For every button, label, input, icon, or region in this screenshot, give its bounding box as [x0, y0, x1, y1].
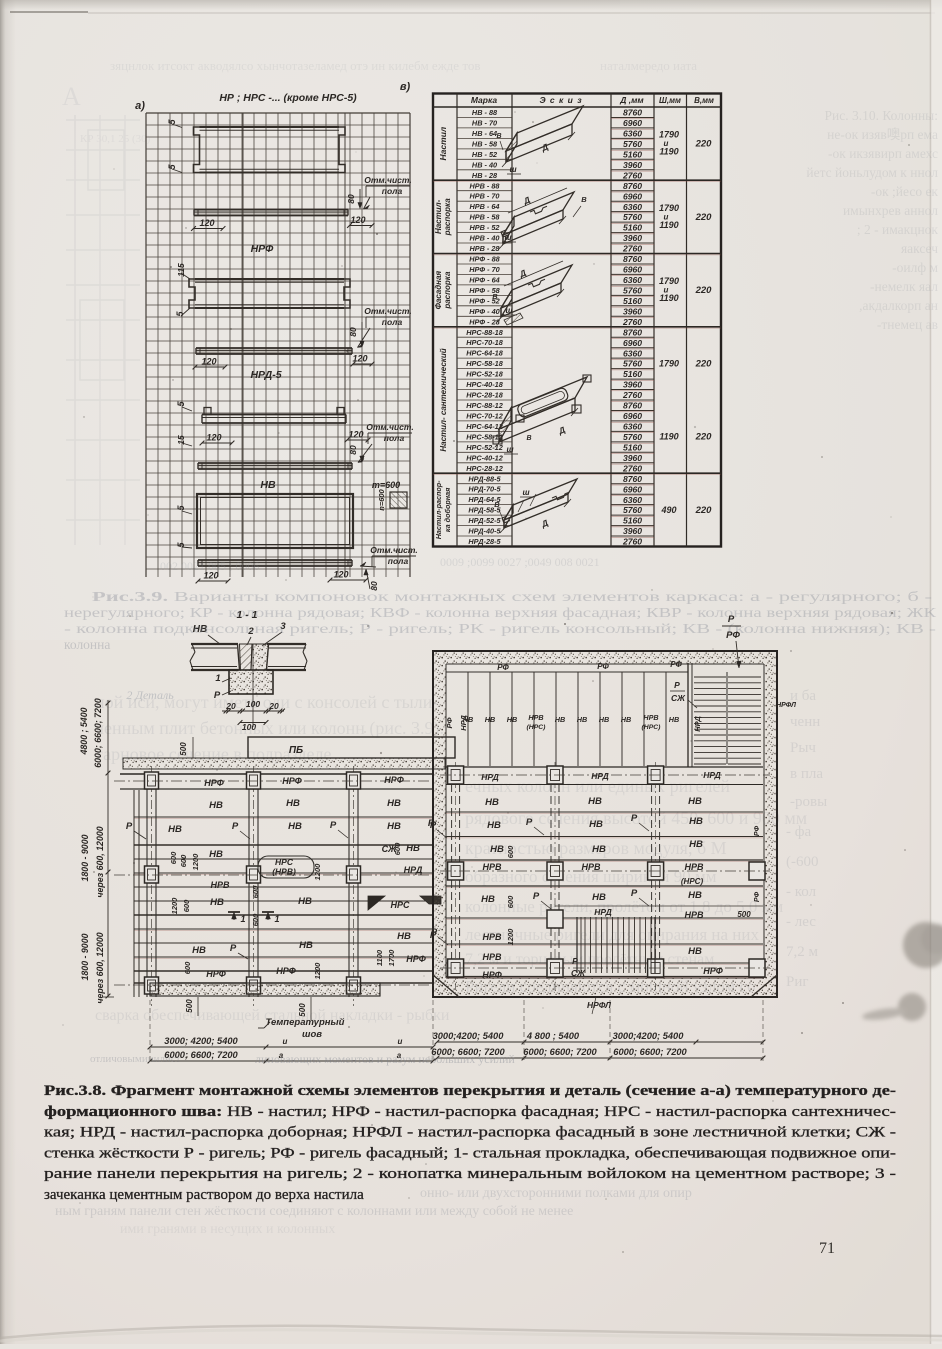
svg-text:НРВ: НРВ — [482, 862, 502, 872]
svg-text:- колонна подконсольная ригель: - колонна подконсольная ригель; Р - риге… — [64, 621, 937, 636]
svg-text:1: 1 — [215, 673, 220, 684]
svg-text:1790: 1790 — [659, 358, 679, 368]
svg-text:НРФ: НРФ — [703, 966, 723, 976]
svg-text:СЖ: СЖ — [571, 968, 586, 978]
svg-text:7,2 м и торцовым пролётным сте: 7,2 м и торцовым пролётным стенам — [465, 951, 714, 968]
svg-text:стенка жёсткости Р - ригель; Р: стенка жёсткости Р - ригель; РФ - ригель… — [44, 1145, 896, 1161]
svg-text:зачеканка цементным раствором: зачеканка цементным раствором до верха н… — [44, 1187, 364, 1203]
svg-text:не-ок изяв噢рп ема: не-ок изяв噢рп ема — [827, 127, 938, 142]
svg-text:5160: 5160 — [623, 149, 642, 159]
svg-text:НРВ - 28: НРВ - 28 — [469, 244, 500, 253]
svg-text:n=600: n=600 — [377, 488, 386, 510]
svg-text:1800 - 9000: 1800 - 9000 — [80, 933, 90, 980]
svg-text:НВ: НВ — [669, 715, 679, 724]
svg-text:НРС-64-12: НРС-64-12 — [466, 422, 503, 431]
svg-text:6960: 6960 — [623, 118, 642, 128]
svg-text:8760: 8760 — [623, 474, 642, 484]
svg-text:НВ: НВ — [286, 798, 300, 809]
svg-text:НВ: НВ — [299, 940, 313, 951]
svg-text:НРФ - 40: НРФ - 40 — [469, 307, 499, 316]
svg-text:1200: 1200 — [191, 853, 200, 871]
svg-text:ной иси, могут иметь оди с кон: ной иси, могут иметь оди с консолей с ты… — [95, 692, 438, 712]
svg-text:; 2 - имакцнок: ; 2 - имакцнок — [857, 222, 939, 237]
svg-text:500: 500 — [737, 910, 751, 919]
svg-text:5760: 5760 — [623, 359, 642, 369]
svg-text:6000; 6600; 7200: 6000; 6600; 7200 — [613, 1047, 687, 1057]
svg-text:НРФ: НРФ — [384, 775, 404, 785]
svg-text:6960: 6960 — [623, 411, 642, 421]
svg-text:Настил-: Настил- — [434, 199, 443, 234]
svg-text:НВ: НВ — [588, 796, 602, 807]
svg-text:НВ: НВ — [192, 945, 206, 956]
svg-text:(НРС): (НРС) — [681, 877, 704, 886]
svg-text:ченным плит бетонных или коло: ченным плит бетонных или колонн (рис. 3.… — [95, 718, 444, 739]
svg-text:НВ: НВ — [621, 715, 631, 724]
svg-text:600: 600 — [506, 895, 515, 908]
svg-text:НВ: НВ — [592, 844, 606, 855]
svg-text:220: 220 — [695, 505, 713, 516]
svg-text:3000;4200; 5400: 3000;4200; 5400 — [613, 1031, 685, 1041]
svg-text:НРВ - 40: НРВ - 40 — [469, 234, 499, 243]
svg-text:оннο- или двухсторонними полка: оннο- или двухсторонними полками для опи… — [420, 1186, 692, 1201]
svg-text:5760: 5760 — [623, 212, 642, 222]
svg-text:5760: 5760 — [623, 285, 642, 295]
svg-text:НРС-40-18: НРС-40-18 — [466, 380, 503, 389]
svg-text:002 0021 005 ; 0006: 002 0021 005 ; 0006 — [160, 559, 259, 573]
svg-text:НВ: НВ — [577, 715, 587, 724]
svg-text:НВ - 28: НВ - 28 — [472, 171, 498, 180]
svg-text:Р: Р — [430, 820, 437, 831]
svg-text:3000; 4200; 5400: 3000; 4200; 5400 — [164, 1036, 238, 1046]
svg-text:НРВ - 52: НРВ - 52 — [469, 223, 499, 232]
svg-text:В: В — [494, 500, 500, 509]
svg-text:НВ: НВ — [487, 820, 501, 831]
svg-text:6360: 6360 — [623, 202, 642, 212]
svg-text:6000; 6600; 7200: 6000; 6600; 7200 — [93, 698, 103, 768]
svg-text:пола: пола — [382, 186, 403, 196]
svg-text:4800 ; 5400: 4800 ; 5400 — [79, 707, 89, 755]
svg-text:3960: 3960 — [623, 380, 642, 390]
svg-text:220: 220 — [695, 139, 713, 150]
svg-text:3960: 3960 — [623, 453, 642, 463]
svg-text:2760: 2760 — [622, 537, 642, 547]
svg-text:Рис.3.9. Варианты компоновок м: Рис.3.9. Варианты компоновок монтажных с… — [92, 589, 933, 604]
svg-text:(НРС): (НРС) — [642, 724, 662, 731]
svg-text:2760: 2760 — [622, 317, 642, 327]
svg-text:НРФЛ: НРФЛ — [776, 702, 796, 709]
svg-text:8760: 8760 — [623, 401, 642, 411]
svg-text:120: 120 — [206, 433, 221, 443]
svg-text:НВ: НВ — [481, 894, 495, 905]
svg-text:8760: 8760 — [623, 327, 642, 337]
svg-text:Р: Р — [631, 813, 638, 824]
svg-text:через 600, 12000: через 600, 12000 — [95, 826, 105, 897]
svg-text:НРД-70-5: НРД-70-5 — [468, 485, 501, 494]
svg-text:СЖ: СЖ — [671, 693, 686, 703]
svg-text:600: 600 — [183, 961, 192, 974]
svg-text:6360: 6360 — [623, 495, 642, 505]
svg-text:-немелк яал: -немелк яал — [870, 279, 938, 294]
svg-text:НРД-40-5: НРД-40-5 — [468, 527, 501, 536]
svg-text:пола: пола — [382, 317, 403, 327]
svg-text:ш: ш — [522, 488, 529, 497]
svg-text:1190: 1190 — [659, 432, 678, 442]
svg-text:НРС-88-12: НРС-88-12 — [466, 401, 503, 410]
svg-text:220: 220 — [695, 212, 713, 223]
svg-text:Р: Р — [728, 614, 735, 625]
svg-text:НВ: НВ — [599, 715, 609, 724]
svg-text:Ш,мм: Ш,мм — [659, 96, 681, 105]
svg-text:80: 80 — [346, 194, 356, 204]
svg-text:6960: 6960 — [623, 338, 642, 348]
svg-text:Р: Р — [674, 680, 680, 690]
svg-text:формационного шва: НВ - настил: формационного шва: НВ - настил; НРФ - на… — [44, 1104, 896, 1120]
svg-text:НВ - 40: НВ - 40 — [472, 160, 497, 169]
svg-text:йетс йоньлудом к ннол: йетс йоньлудом к ннол — [806, 165, 938, 180]
svg-text:НРД: НРД — [591, 771, 609, 781]
svg-text:НРФ: НРФ — [482, 970, 502, 980]
svg-text:В,мм: В,мм — [694, 96, 714, 105]
svg-text:1800 - 9000: 1800 - 9000 — [80, 834, 90, 881]
svg-text:8760: 8760 — [623, 181, 642, 191]
svg-text:НРД-52-5: НРД-52-5 — [468, 516, 501, 525]
svg-text:НВ: НВ — [689, 816, 703, 827]
svg-text:пола: пола — [384, 433, 405, 443]
svg-text:НРВ: НРВ — [482, 952, 502, 962]
svg-text:600: 600 — [182, 899, 191, 912]
svg-text:ими гранями в несущих и: ими гранями в несущих и колонных — [120, 1222, 335, 1237]
svg-text:(НРВ): (НРВ) — [272, 867, 296, 877]
svg-text:РФ: РФ — [497, 663, 509, 672]
svg-text:600: 600 — [251, 913, 260, 926]
svg-text:Настил-распор-: Настил-распор- — [434, 480, 443, 539]
svg-text:НРД: НРД — [459, 715, 468, 731]
svg-text:НВ - 88: НВ - 88 — [472, 108, 498, 117]
svg-text:6960: 6960 — [623, 191, 642, 201]
svg-text:НВ: НВ — [406, 843, 420, 854]
svg-text:,акдалкорп ан: ,акдалкорп ан — [859, 298, 938, 313]
svg-text:Р: Р — [230, 943, 237, 954]
svg-text:через 600, 12000: через 600, 12000 — [95, 932, 105, 1003]
svg-text:НРС-70-18: НРС-70-18 — [466, 338, 503, 347]
svg-text:600: 600 — [251, 885, 260, 898]
svg-text:6000; 6600; 7200: 6000; 6600; 7200 — [523, 1047, 597, 1057]
svg-text:НРД-88-5: НРД-88-5 — [468, 474, 501, 483]
svg-text:РФ: РФ — [754, 825, 761, 836]
svg-text:а): а) — [135, 100, 145, 112]
svg-text:120: 120 — [350, 215, 365, 225]
svg-text:120: 120 — [348, 430, 363, 440]
svg-text:НРФ - 64: НРФ - 64 — [469, 275, 499, 284]
svg-text:Рыч: Рыч — [790, 740, 816, 756]
svg-text:НВ: НВ — [555, 715, 565, 724]
svg-text:Температурный: Температурный — [266, 1017, 345, 1028]
svg-text:5160: 5160 — [623, 516, 642, 526]
svg-text:В: В — [496, 133, 501, 140]
svg-text:рание панели перекрытия на риг: рание панели перекрытия на ригель; 2 - к… — [44, 1166, 896, 1182]
svg-text:НВ: НВ — [507, 715, 517, 724]
svg-text:2760: 2760 — [622, 463, 642, 473]
svg-text:НРВ - 64: НРВ - 64 — [469, 202, 499, 211]
svg-text:ш: ш — [505, 306, 512, 315]
svg-text:НРФ: НРФ — [406, 954, 426, 964]
svg-text:НРД: НРД — [481, 772, 499, 782]
svg-text:Д ,мм: Д ,мм — [619, 95, 644, 105]
svg-text:1200: 1200 — [313, 962, 322, 980]
svg-text:Э с к и з: Э с к и з — [539, 95, 582, 105]
svg-text:НРС-64-18: НРС-64-18 — [466, 349, 503, 358]
svg-text:Р: Р — [533, 891, 540, 902]
svg-text:220: 220 — [695, 358, 713, 369]
svg-text:РФ: РФ — [670, 660, 682, 669]
svg-text:НВ: НВ — [688, 890, 702, 901]
svg-text:220: 220 — [695, 432, 713, 443]
svg-text:НРФ - 70: НРФ - 70 — [469, 265, 499, 274]
svg-text:НВ: НВ — [209, 800, 223, 811]
svg-text:НВ: НВ — [589, 819, 603, 830]
svg-text:НРФ: НРФ — [282, 776, 302, 786]
svg-text:НВ: НВ — [168, 824, 182, 835]
svg-text:НВ: НВ — [490, 844, 504, 855]
svg-text:НРС-58-18: НРС-58-18 — [466, 359, 503, 368]
svg-text:ным граням панели стен жёсткос: ным граням панели стен жёсткости соединя… — [55, 1204, 573, 1219]
svg-text:НРФ: НРФ — [204, 778, 224, 788]
svg-text:5760: 5760 — [623, 432, 642, 442]
svg-text:220: 220 — [695, 285, 713, 296]
svg-text:ш: ш — [506, 445, 513, 454]
svg-text:НРФ - 88: НРФ - 88 — [469, 255, 500, 264]
svg-text:в): в) — [400, 81, 411, 93]
svg-text:отличовыминилист: отличовыминилист — [90, 1053, 181, 1065]
svg-text:НРФ: НРФ — [251, 243, 275, 255]
svg-text:Отм.чист.: Отм.чист. — [364, 306, 411, 316]
svg-text:КР 30,1 25 (30): КР 30,1 25 (30) — [80, 133, 151, 145]
svg-text:НРД-5: НРД-5 — [250, 369, 281, 381]
svg-text:3960: 3960 — [623, 233, 642, 243]
svg-text:НРФ: НРФ — [276, 966, 296, 976]
svg-text:120: 120 — [352, 354, 367, 364]
svg-text:2760: 2760 — [622, 244, 642, 254]
svg-text:НВ: НВ — [688, 796, 702, 807]
svg-text:колонна: колонна — [64, 637, 110, 652]
svg-text:80: 80 — [348, 445, 358, 455]
svg-text:5760: 5760 — [623, 139, 642, 149]
svg-text:А: А — [62, 82, 81, 111]
svg-text:115: 115 — [176, 263, 186, 277]
svg-text:РФ: РФ — [445, 717, 454, 728]
svg-text:ка доборная: ка доборная — [443, 487, 452, 532]
svg-text:2760: 2760 — [622, 390, 642, 400]
svg-text:5160: 5160 — [623, 369, 642, 379]
svg-text:Рис. 3.10. Колонны:: Рис. 3.10. Колонны: — [824, 108, 938, 123]
svg-text:Р: Р — [126, 821, 133, 832]
svg-text:НВ: НВ — [689, 839, 703, 850]
svg-text:500: 500 — [298, 1003, 307, 1017]
svg-text:Марка: Марка — [471, 95, 498, 105]
svg-text:НРФЛ: НРФЛ — [587, 1000, 611, 1010]
svg-text:НРС-52-18: НРС-52-18 — [466, 370, 503, 379]
svg-text:ПБ: ПБ — [289, 745, 303, 756]
svg-text:-оилф м: -оилф м — [892, 260, 938, 275]
svg-text:0009 ;0099 0027 ;0049 008 0: 0009 ;0099 0027 ;0049 008 0021 — [440, 555, 600, 569]
svg-text:1: 1 — [240, 914, 245, 924]
svg-text:в пла: в пла — [790, 766, 823, 782]
svg-text:НРВ: НРВ — [482, 932, 502, 942]
svg-text:НРВ - 70: НРВ - 70 — [469, 192, 499, 201]
svg-text:Р: Р — [431, 927, 438, 938]
svg-text:НРС: НРС — [275, 857, 294, 867]
svg-text:5160: 5160 — [623, 223, 642, 233]
svg-text:кая; НРД - настил-распорка доб: кая; НРД - настил-распорка доборная; НРФ… — [44, 1125, 896, 1141]
svg-text:имынхрев аннол: имынхрев аннол — [843, 203, 938, 218]
svg-text:НРД: НРД — [404, 865, 423, 875]
svg-text:Отм.чист.: Отм.чист. — [366, 422, 413, 432]
svg-text:НРВ - 88: НРВ - 88 — [469, 181, 500, 190]
svg-text:НВ: НВ — [298, 896, 312, 907]
svg-text:НВ - 70: НВ - 70 — [472, 118, 497, 127]
svg-text:490: 490 — [660, 505, 676, 515]
svg-text:НРС: НРС — [390, 900, 410, 910]
svg-text:1100: 1100 — [375, 949, 384, 966]
svg-text:- фа: - фа — [786, 824, 811, 840]
svg-text:5760: 5760 — [623, 505, 642, 515]
svg-text:распорка: распорка — [443, 271, 452, 310]
svg-text:РФ: РФ — [754, 891, 761, 902]
svg-text:1190: 1190 — [659, 220, 678, 230]
svg-text:-тнемец ав: -тнемец ав — [877, 317, 938, 332]
svg-text:НРС-28-18: НРС-28-18 — [466, 391, 503, 400]
svg-text:6360: 6360 — [623, 275, 642, 285]
svg-text:7,2 м: 7,2 м — [786, 944, 819, 960]
svg-text:НВ - 52: НВ - 52 — [472, 150, 497, 159]
svg-text:71: 71 — [819, 1240, 835, 1257]
svg-text:Отм.чист.: Отм.чист. — [370, 545, 417, 555]
svg-text:В: В — [492, 292, 498, 301]
svg-text:600: 600 — [179, 854, 188, 867]
svg-text:m=600: m=600 — [372, 480, 400, 490]
svg-text:Риг: Риг — [786, 974, 809, 990]
svg-text:и: и — [398, 1037, 403, 1046]
svg-text:3000;4200; 5400: 3000;4200; 5400 — [433, 1031, 505, 1041]
svg-text:РФ: РФ — [726, 630, 740, 641]
svg-text:1700: 1700 — [387, 949, 396, 967]
svg-text:НРС-58-12: НРС-58-12 — [466, 432, 503, 441]
svg-text:линовающих моментов и разум н: линовающих моментов и разум небольших ус… — [255, 1052, 515, 1066]
svg-text:1: 1 — [274, 914, 279, 924]
svg-text:1200: 1200 — [170, 897, 179, 915]
svg-text:В: В — [581, 195, 587, 204]
svg-text:НРС-70-12: НРС-70-12 — [466, 411, 503, 420]
svg-text:НВ: НВ — [387, 798, 401, 809]
svg-text:4 800 ; 5400: 4 800 ; 5400 — [526, 1031, 580, 1041]
svg-text:600: 600 — [169, 851, 178, 864]
svg-text:1790: 1790 — [659, 203, 679, 213]
svg-text:НВ: НВ — [485, 797, 499, 808]
svg-text:15: 15 — [176, 435, 186, 445]
svg-text:наталмередо иата: наталмередо иата — [600, 58, 697, 73]
svg-text:-ок ;йесо ек: -ок ;йесо ек — [871, 184, 939, 199]
svg-text:1790: 1790 — [659, 276, 679, 286]
svg-text:НВ - 58: НВ - 58 — [472, 139, 498, 148]
svg-text:яаксеч: яаксеч — [901, 241, 938, 256]
svg-text:Р: Р — [330, 820, 337, 831]
svg-text:НРД: НРД — [594, 907, 612, 917]
svg-text:НВ: НВ — [387, 821, 401, 832]
svg-text:НРВ: НРВ — [210, 880, 230, 890]
svg-text:Настил: Настил — [438, 126, 448, 160]
svg-text:3960: 3960 — [623, 306, 642, 316]
svg-text:8760: 8760 — [623, 254, 642, 264]
svg-text:- лес: - лес — [786, 914, 816, 930]
svg-text:НРВ: НРВ — [581, 862, 601, 872]
svg-text:НВ - 64: НВ - 64 — [472, 129, 497, 138]
svg-text:2760: 2760 — [622, 170, 642, 180]
svg-text:пола: пола — [388, 556, 409, 566]
svg-text:120: 120 — [201, 357, 216, 367]
svg-text:Р: Р — [631, 888, 638, 899]
svg-text:500: 500 — [179, 742, 188, 756]
svg-text:(НРС): (НРС) — [527, 724, 547, 731]
svg-text:шов: шов — [302, 1029, 322, 1040]
svg-text:Рис.3.8. Фрагмент монтажной сх: Рис.3.8. Фрагмент монтажной схемы элемен… — [44, 1083, 896, 1099]
svg-text:6960: 6960 — [623, 265, 642, 275]
svg-text:НВ: НВ — [397, 931, 411, 942]
svg-text:НВ: НВ — [288, 821, 302, 832]
svg-text:НРФ: НРФ — [206, 969, 226, 979]
svg-text:- кол: - кол — [786, 884, 817, 900]
svg-text:НР ; НРС -... (кроме НРС-5): НР ; НРС -... (кроме НРС-5) — [219, 92, 357, 104]
svg-text:Р: Р — [526, 817, 533, 828]
svg-text:ш: ш — [509, 165, 516, 174]
svg-text:3960: 3960 — [623, 160, 642, 170]
svg-text:80: 80 — [348, 327, 358, 337]
svg-text:600: 600 — [393, 842, 402, 855]
svg-text:НРВ: НРВ — [684, 862, 704, 872]
svg-text:5160: 5160 — [623, 296, 642, 306]
svg-text:НВ: НВ — [210, 897, 224, 908]
svg-text:500: 500 — [185, 999, 194, 1013]
svg-text:НРС-28-12: НРС-28-12 — [466, 464, 503, 473]
svg-text:НРВ - 58: НРВ - 58 — [469, 213, 500, 222]
svg-text:1190: 1190 — [659, 293, 678, 303]
svg-text:Р: Р — [232, 821, 239, 832]
svg-text:120: 120 — [333, 570, 348, 580]
svg-text:НВ: НВ — [592, 892, 606, 903]
svg-text:НВ: НВ — [209, 849, 223, 860]
svg-text:Настил- сантехнический: Настил- сантехнический — [439, 348, 448, 451]
svg-text:НРС-88-18: НРС-88-18 — [466, 328, 503, 337]
svg-text:6360: 6360 — [623, 422, 642, 432]
svg-text:6360: 6360 — [623, 348, 642, 358]
svg-text:и: и — [283, 1037, 288, 1046]
svg-text:1190: 1190 — [659, 147, 678, 157]
svg-text:НРВ: НРВ — [528, 713, 543, 722]
svg-text:6960: 6960 — [623, 484, 642, 494]
svg-text:3960: 3960 — [623, 526, 642, 536]
svg-text:зяцнлок итсокт акводялсо хынч: зяцнлок итсокт акводялсо хынчотазеламед … — [110, 58, 480, 73]
svg-text:НВ: НВ — [688, 946, 702, 957]
svg-text:РФ: РФ — [597, 662, 609, 671]
svg-text:нерегулярного; КР - колонна ря: нерегулярного; КР - колонна рядовая; КВФ… — [64, 605, 937, 620]
svg-text:1200: 1200 — [506, 928, 515, 946]
svg-text:-ок икзявирп амехс: -ок икзявирп амехс — [828, 146, 938, 161]
svg-text:НРД-28-5: НРД-28-5 — [468, 537, 501, 546]
svg-text:НРС-40-12: НРС-40-12 — [466, 453, 503, 462]
svg-text:НРД: НРД — [693, 716, 702, 732]
svg-text:Отм.чист.: Отм.чист. — [364, 175, 411, 185]
svg-text:распорка: распорка — [443, 198, 452, 237]
svg-text:6360: 6360 — [623, 129, 642, 139]
